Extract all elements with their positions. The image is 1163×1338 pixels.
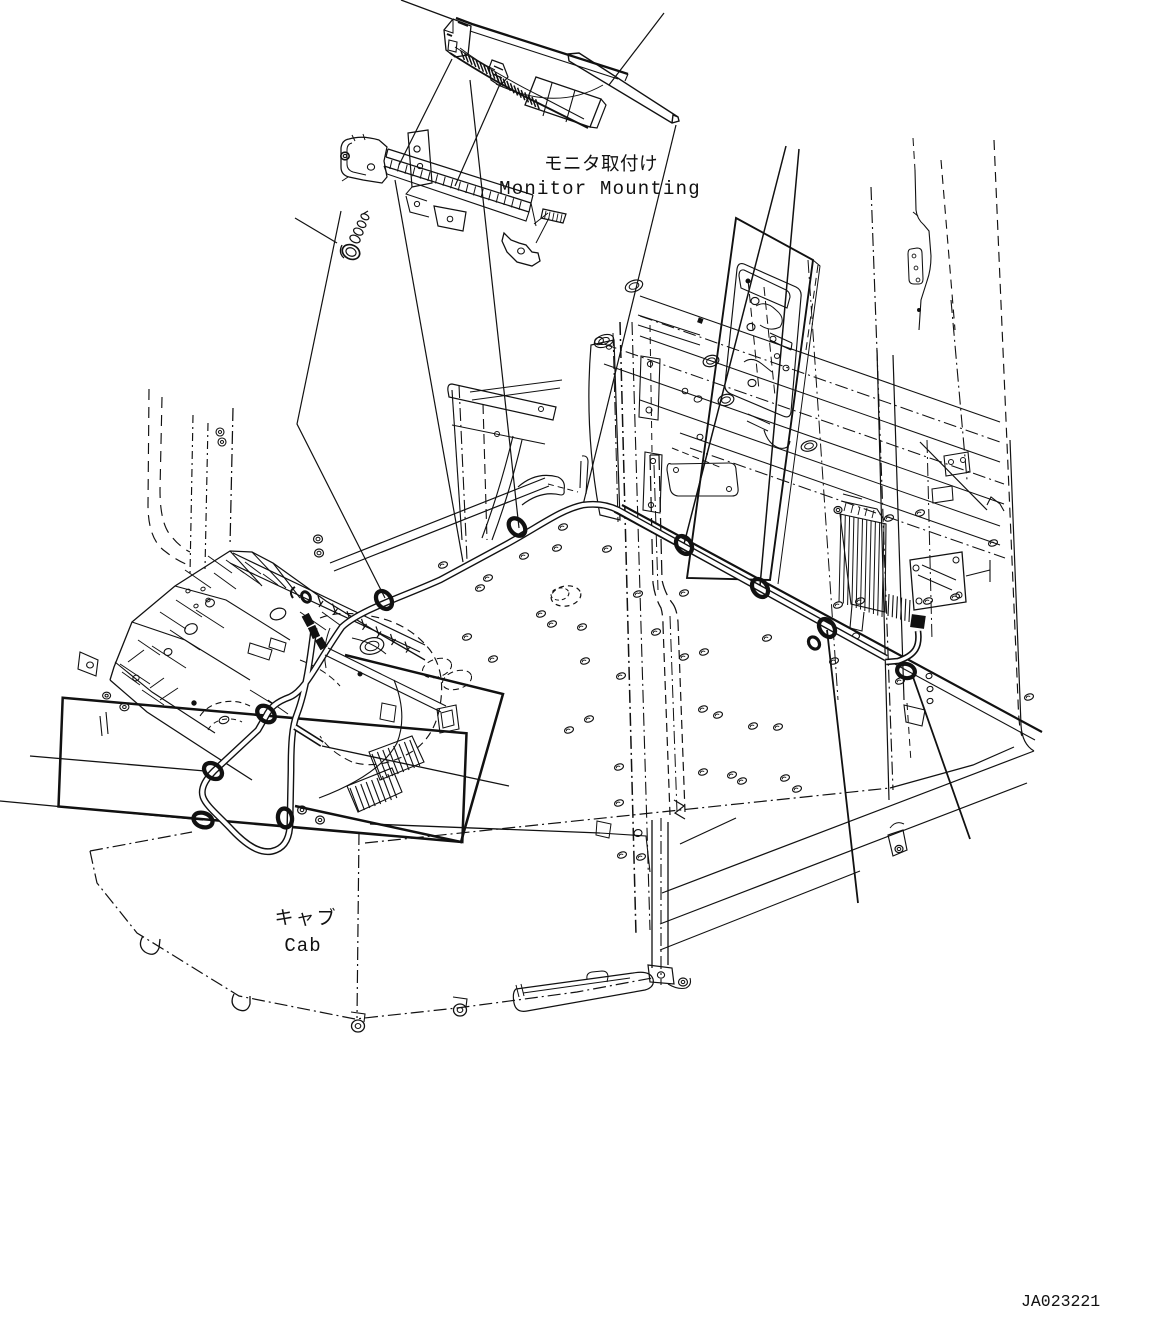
svg-text:JA023221: JA023221 bbox=[1021, 1292, 1100, 1311]
svg-text:Cab: Cab bbox=[284, 935, 321, 957]
svg-text:キャブ: キャブ bbox=[274, 906, 337, 929]
svg-text:モニタ取付け: モニタ取付け bbox=[544, 153, 658, 174]
svg-text:Monitor Mounting: Monitor Mounting bbox=[499, 178, 701, 200]
